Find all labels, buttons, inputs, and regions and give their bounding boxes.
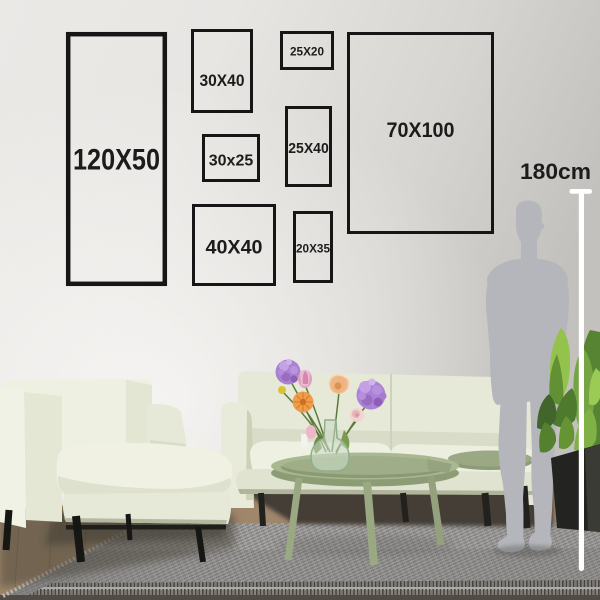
svg-text:25X40: 25X40 (288, 141, 329, 157)
svg-text:120X50: 120X50 (73, 144, 160, 177)
svg-text:30X40: 30X40 (200, 72, 245, 90)
svg-text:30x25: 30x25 (209, 153, 254, 170)
svg-text:40X40: 40X40 (206, 236, 263, 258)
svg-text:180cm: 180cm (520, 159, 591, 184)
svg-text:70X100: 70X100 (387, 118, 455, 142)
svg-text:25X20: 25X20 (290, 44, 324, 58)
svg-text:20X35: 20X35 (296, 241, 330, 255)
